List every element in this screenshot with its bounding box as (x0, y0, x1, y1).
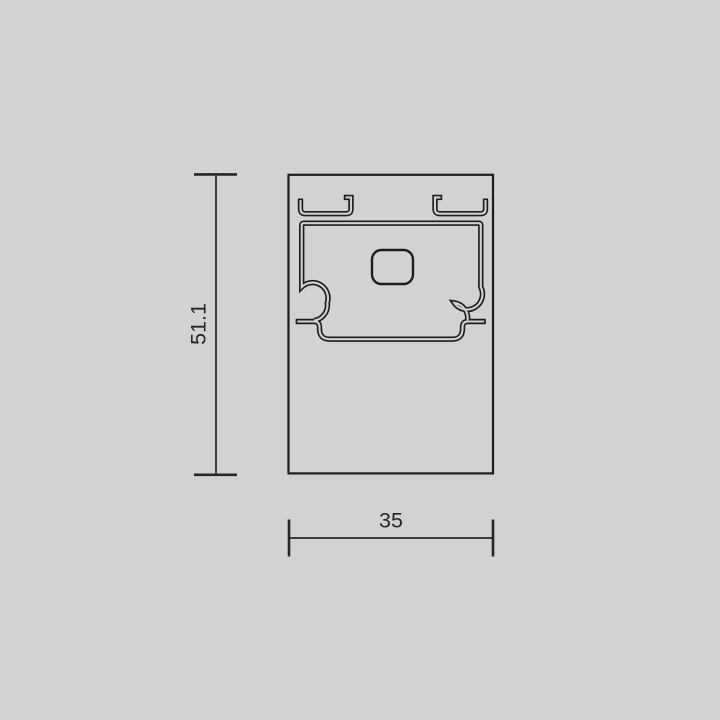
dimension-height-label: 51.1 (187, 303, 211, 345)
mounting-clips-stroke (301, 197, 486, 213)
technical-drawing-page: 51.1 35 (0, 0, 720, 720)
dimension-width-label: 35 (379, 509, 403, 533)
dimension-height: 51.1 (187, 174, 238, 474)
cavity-walls-stroke (297, 223, 486, 339)
profile-center-slot (372, 250, 413, 284)
profile-wall-strokes (297, 197, 486, 339)
dimension-width: 35 (289, 509, 493, 557)
profile-cross-section-drawing: 51.1 35 (0, 0, 720, 720)
cavity-walls-fill (297, 223, 486, 339)
